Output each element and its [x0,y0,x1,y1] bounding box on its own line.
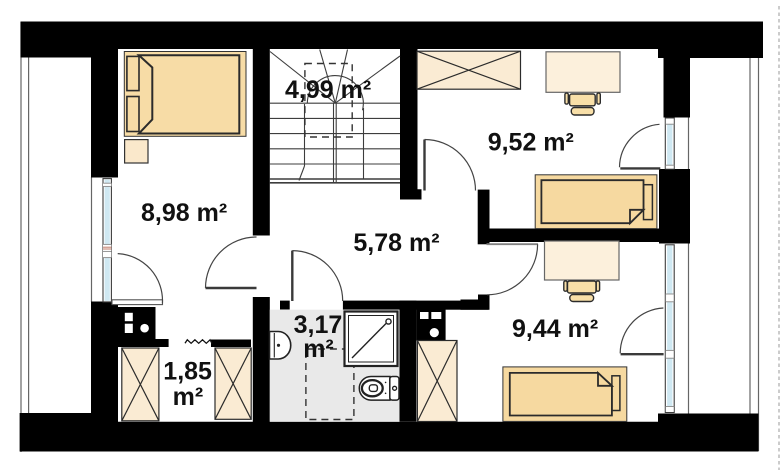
svg-text:9,52 m²: 9,52 m² [488,129,574,157]
svg-text:1,85: 1,85 [163,357,212,385]
svg-text:9,44 m²: 9,44 m² [512,315,598,343]
svg-text:8,98 m²: 8,98 m² [141,199,227,227]
svg-text:m²: m² [303,335,334,363]
svg-text:m²: m² [173,383,204,411]
svg-text:5,78 m²: 5,78 m² [353,229,439,257]
svg-text:4,99 m²: 4,99 m² [285,76,371,104]
